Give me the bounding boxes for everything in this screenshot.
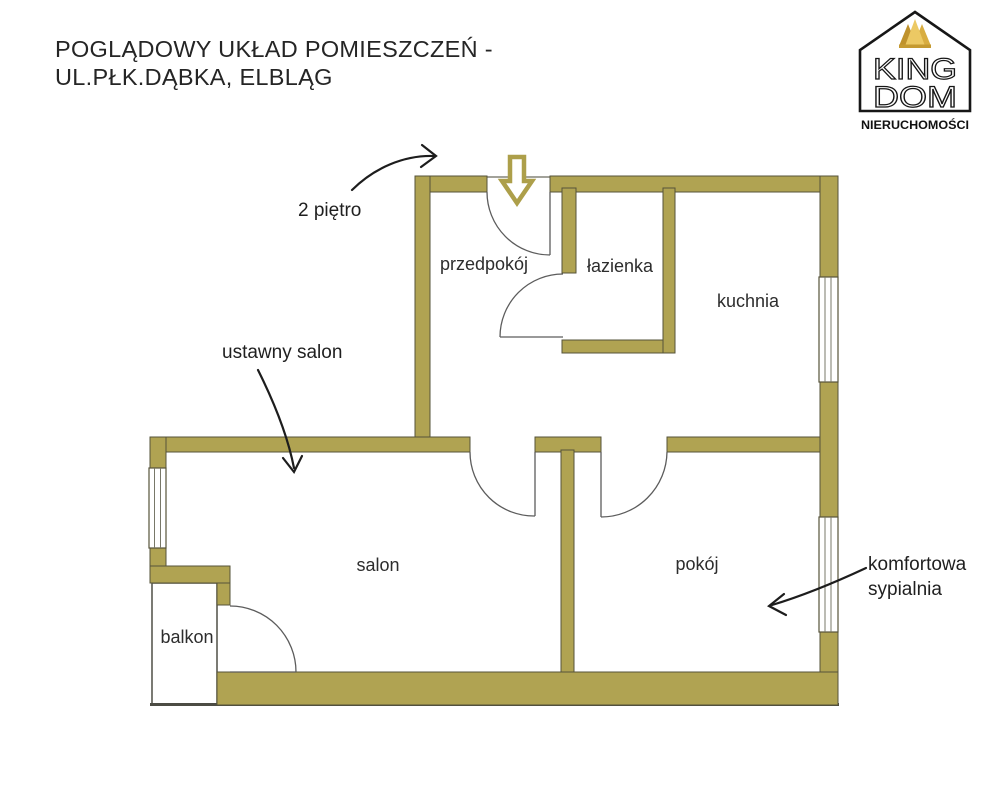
wall [150, 437, 470, 452]
wall [562, 340, 675, 353]
entrance-arrow-icon [502, 157, 532, 203]
wall [217, 583, 230, 605]
wall [820, 176, 838, 277]
wall [562, 188, 576, 273]
window-salon [149, 468, 166, 548]
door-balkon [230, 606, 296, 672]
wall [415, 176, 430, 452]
wall [217, 672, 838, 705]
wall [667, 437, 820, 452]
wall [550, 176, 838, 192]
room-label-balkon: balkon [160, 627, 213, 648]
floorplan-page: POGLĄDOWY UKŁAD POMIESZCZEŃ - UL.PŁK.DĄB… [0, 0, 982, 800]
annotation-bedroom-line2: sypialnia [868, 578, 966, 603]
wall [150, 566, 230, 583]
annotation-bedroom-line1: komfortowa [868, 553, 966, 578]
door-pokoj [601, 452, 667, 517]
room-label-przedpokoj: przedpokój [440, 254, 528, 275]
window-kuchnia [819, 277, 838, 382]
living-room-arrow-icon [258, 370, 302, 472]
room-label-kuchnia: kuchnia [717, 291, 779, 312]
window-pokoj [819, 517, 838, 632]
bedroom-arrow-icon [769, 568, 866, 615]
annotation-living-room: ustawny salon [222, 341, 342, 366]
room-label-salon: salon [356, 555, 399, 576]
wall [150, 437, 166, 468]
floorplan-drawing [0, 0, 982, 800]
annotation-floor: 2 piętro [298, 199, 361, 224]
windows-group [149, 277, 838, 632]
door-salon [470, 452, 535, 516]
wall [820, 382, 838, 517]
wall [561, 450, 574, 676]
wall [663, 188, 675, 353]
door-lazienka [500, 274, 563, 337]
annotation-bedroom: komfortowa sypialnia [868, 553, 966, 602]
room-label-lazienka: łazienka [587, 256, 653, 277]
room-label-pokoj: pokój [675, 554, 718, 575]
